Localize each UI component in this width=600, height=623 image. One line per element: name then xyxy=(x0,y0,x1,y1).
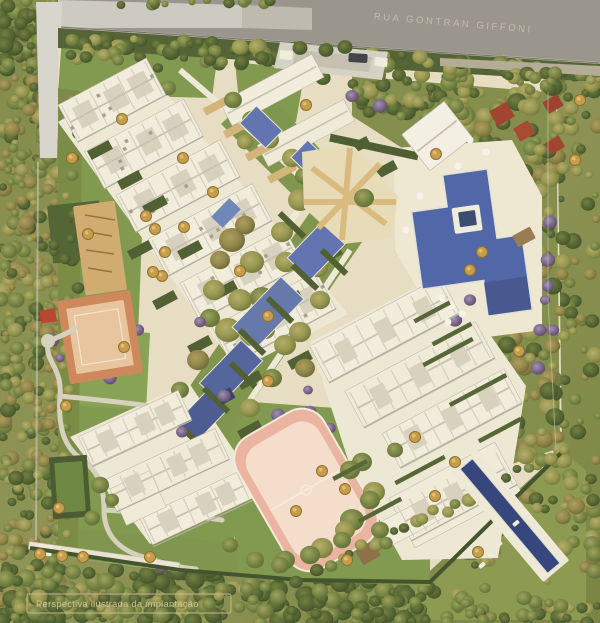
svg-text:Perspectiva ilustrada da impla: Perspectiva ilustrada da implantação xyxy=(36,599,199,609)
